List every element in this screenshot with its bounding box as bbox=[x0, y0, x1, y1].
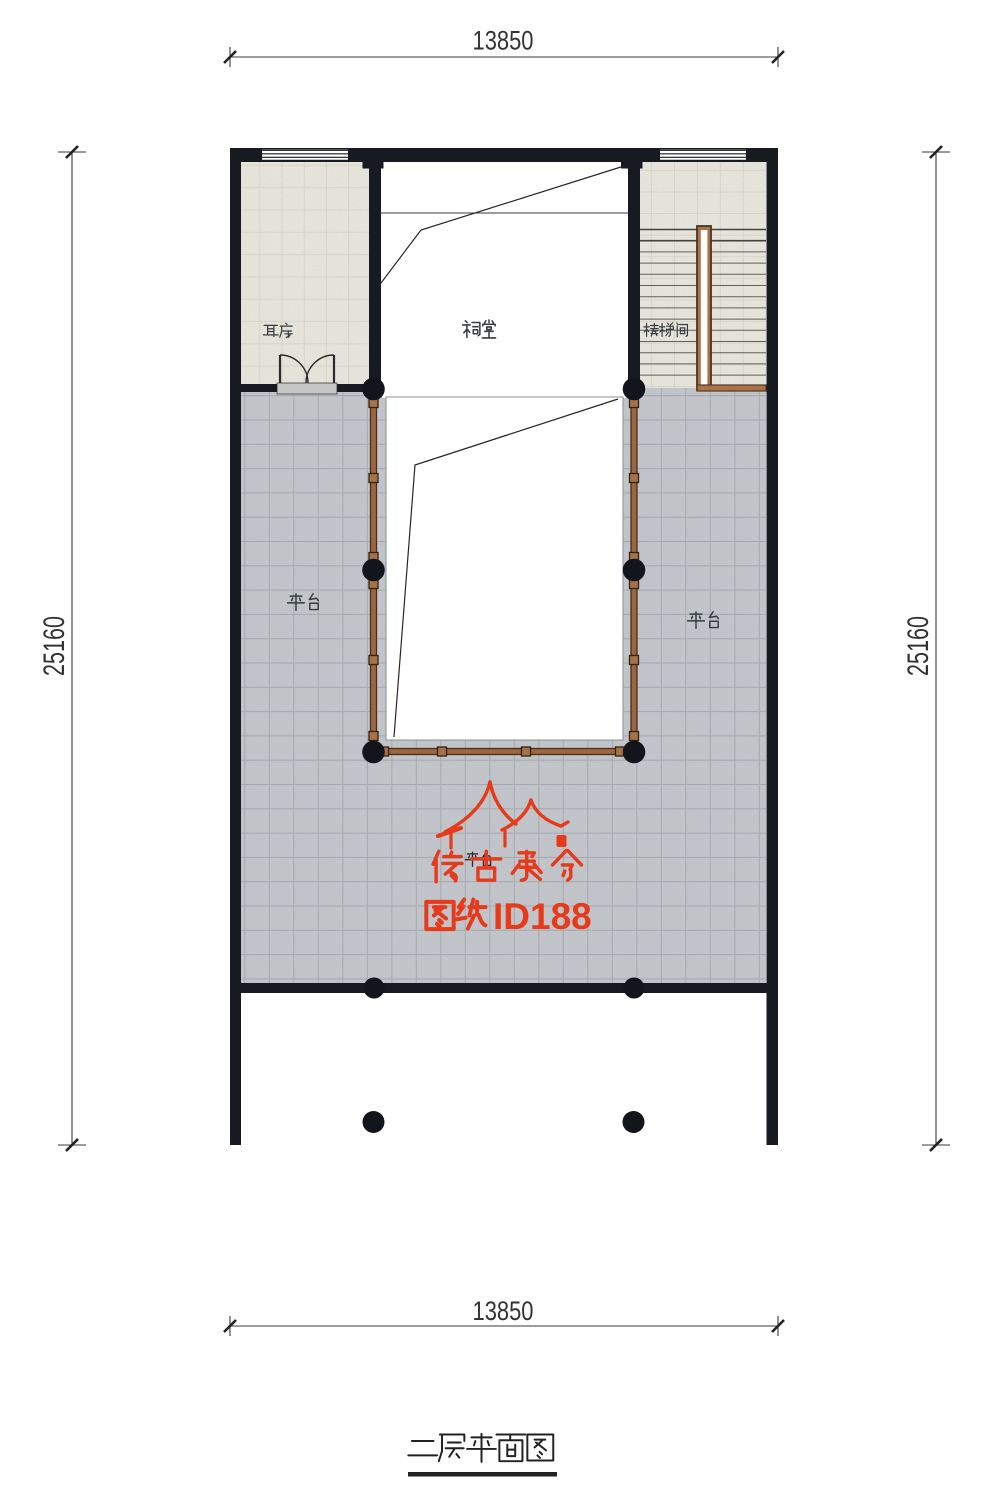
svg-text:25160: 25160 bbox=[902, 616, 935, 676]
svg-text:13850: 13850 bbox=[473, 26, 534, 56]
svg-text:13850: 13850 bbox=[473, 1296, 534, 1326]
svg-text:ID188: ID188 bbox=[493, 896, 592, 937]
svg-text:25160: 25160 bbox=[38, 616, 71, 676]
